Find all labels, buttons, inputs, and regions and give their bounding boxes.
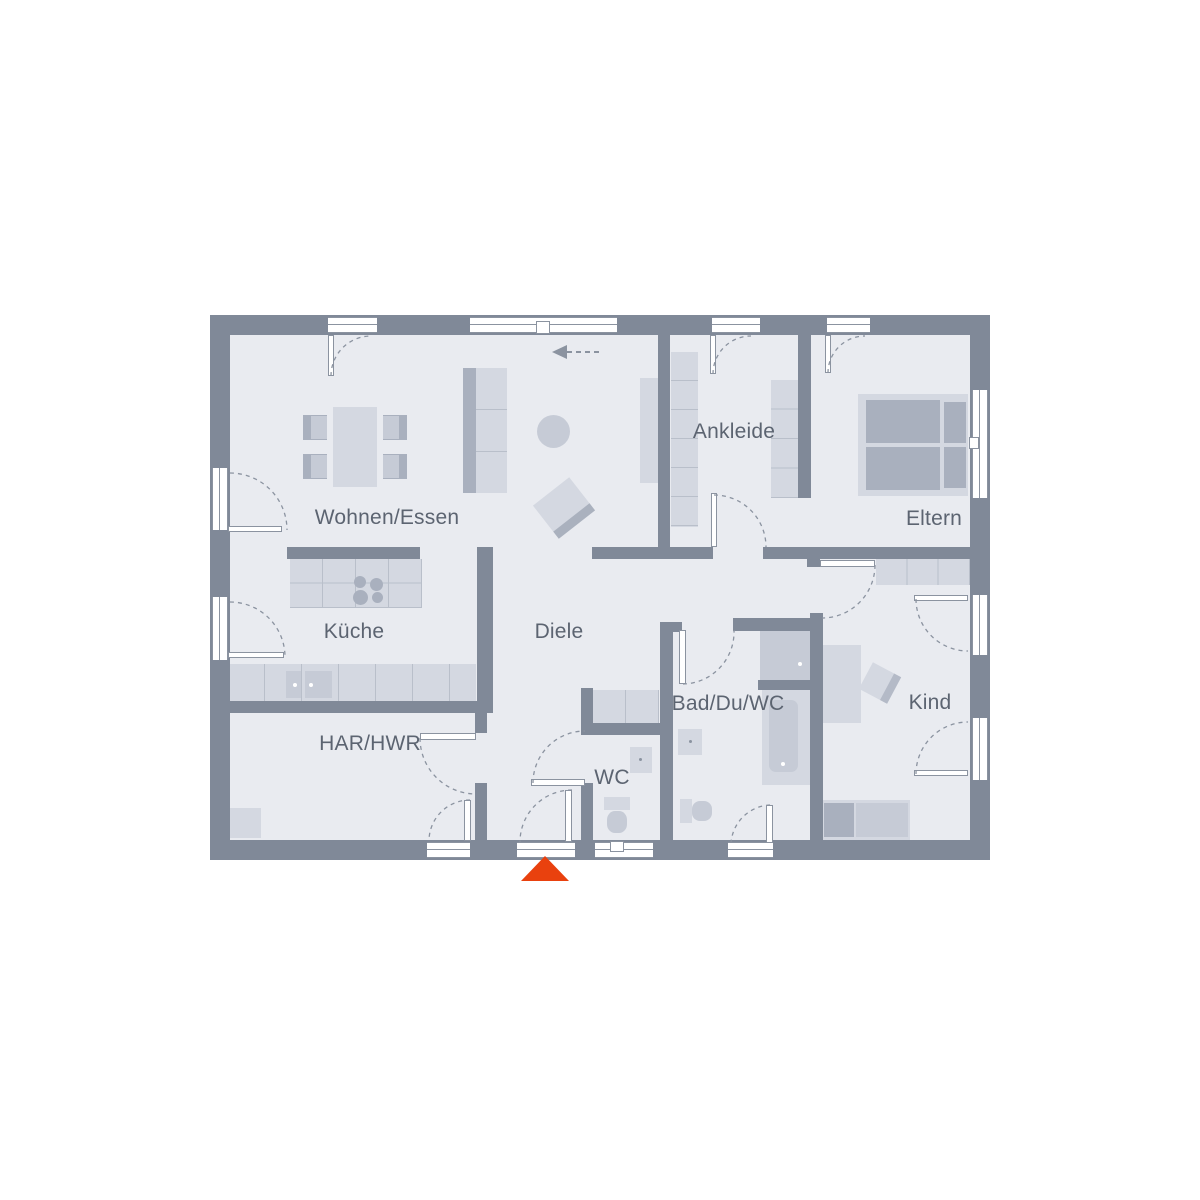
faucet-dot	[309, 683, 313, 687]
window	[595, 842, 653, 858]
coffee-table	[537, 415, 570, 448]
shower-drain	[798, 662, 802, 666]
room-label-kueche: Küche	[324, 620, 385, 644]
door-leaf	[766, 805, 773, 843]
bed-mattress	[856, 803, 908, 837]
basin-dot	[639, 758, 642, 761]
window	[212, 468, 228, 530]
window	[972, 595, 988, 655]
interior-wall	[228, 701, 493, 713]
door-leaf	[914, 595, 968, 601]
utility-cabinet	[228, 808, 261, 838]
room-label-wc: WC	[594, 766, 629, 790]
dining-table	[333, 407, 377, 487]
interior-wall	[660, 622, 673, 843]
cooktop-burner	[353, 590, 368, 605]
room-label-ankleide: Ankleide	[693, 420, 775, 444]
interior-wall	[592, 547, 713, 559]
window	[712, 317, 760, 333]
dining-chair-seat	[311, 416, 327, 439]
desk	[823, 645, 861, 723]
interior-wall	[581, 723, 660, 735]
vent-symbol	[610, 841, 624, 852]
door-leaf	[679, 630, 686, 684]
door-leaf	[711, 493, 717, 547]
sofa-backrest	[463, 368, 476, 493]
room-label-bad-du-wc: Bad/Du/WC	[672, 692, 785, 716]
window	[972, 718, 988, 780]
faucet-dot	[293, 683, 297, 687]
kitchen-counter	[228, 664, 476, 702]
bed-mattress	[866, 447, 940, 490]
door-leaf	[565, 790, 572, 842]
exterior-wall-left	[210, 315, 230, 860]
door-leaf	[228, 526, 282, 532]
window	[827, 317, 870, 333]
cooktop-burner	[370, 578, 383, 591]
room-label-wohnen-essen: Wohnen/Essen	[315, 506, 459, 530]
door-threshold	[427, 842, 470, 858]
door-leaf	[710, 335, 716, 374]
interior-wall	[581, 783, 593, 840]
window-handle	[969, 437, 979, 449]
toilet-bowl	[692, 801, 712, 821]
entrance-threshold	[517, 842, 575, 858]
door-leaf	[914, 770, 968, 776]
shower	[760, 630, 810, 680]
cooktop-burner	[354, 576, 366, 588]
interior-wall	[763, 547, 970, 559]
door-leaf	[228, 652, 284, 658]
toilet-tank	[680, 799, 692, 823]
door-leaf	[328, 335, 334, 376]
bed-pillow	[944, 447, 966, 488]
interior-wall	[807, 555, 820, 567]
toilet-tank	[604, 797, 630, 810]
toilet-bowl	[607, 811, 627, 833]
door-leaf	[464, 800, 471, 841]
sofa-seat	[476, 368, 507, 493]
door-leaf	[420, 733, 476, 740]
door-leaf	[531, 779, 585, 786]
dining-chair-seat	[311, 455, 327, 478]
cooktop-burner	[372, 592, 383, 603]
window	[328, 317, 377, 333]
hall-bench	[593, 690, 659, 723]
interior-wall	[733, 618, 810, 631]
interior-wall	[798, 335, 811, 498]
bed-pillow	[824, 803, 854, 837]
wardrobe	[876, 558, 970, 585]
bed-mattress	[866, 400, 940, 443]
floor-plan-canvas: Wohnen/Essen Küche Diele HAR/HWR WC Bad/…	[0, 0, 1200, 1200]
interior-wall	[477, 547, 493, 713]
window	[728, 842, 773, 858]
tv-sideboard	[640, 378, 658, 483]
window	[212, 597, 228, 660]
vent-symbol	[536, 321, 550, 334]
interior-wall	[758, 680, 810, 690]
interior-wall	[658, 335, 670, 547]
interior-wall	[475, 713, 487, 733]
door-leaf	[825, 335, 831, 373]
room-label-kind: Kind	[909, 691, 952, 715]
dining-chair-seat	[383, 416, 399, 439]
room-label-eltern: Eltern	[906, 507, 962, 531]
bathtub-drain	[781, 762, 785, 766]
interior-wall	[810, 613, 823, 843]
room-label-diele: Diele	[535, 620, 584, 644]
bed-pillow	[944, 402, 966, 443]
interior-wall	[475, 783, 487, 840]
basin-dot	[689, 740, 692, 743]
room-label-har-hwr: HAR/HWR	[319, 732, 421, 756]
door-leaf	[820, 560, 875, 567]
interior-wall	[287, 547, 420, 559]
dining-chair-seat	[383, 455, 399, 478]
